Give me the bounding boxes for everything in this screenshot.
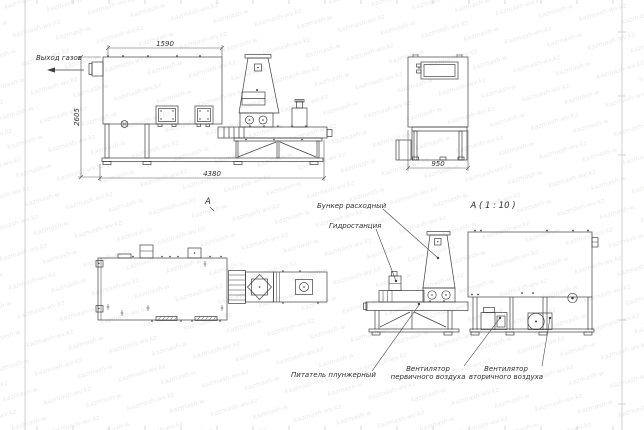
bunker-label: Бункер расходный <box>317 202 387 210</box>
feeder-label: Питатель плунжерный <box>291 371 376 379</box>
dim-2605-value: 2605 <box>73 108 81 126</box>
fan-primary-label-line2: первичного воздуха <box>391 373 466 381</box>
gas-outlet-label: Выход газов <box>36 54 82 62</box>
fan-secondary-label-line2: вторичного воздуха <box>469 373 543 381</box>
view-a-label: А <box>204 197 211 207</box>
drawing-sheet: kazmash-wv.kz kazmash-wv.kz <box>0 0 644 430</box>
fan-primary-label-line1: Вентилятор <box>406 365 450 373</box>
dim-4380-value: 4380 <box>203 170 221 178</box>
fan-secondary-label-line1: Вентилятор <box>484 365 528 373</box>
dim-950-value: 950 <box>431 160 445 168</box>
section-title: А ( 1 : 10 ) <box>469 201 515 211</box>
dim-1590-value: 1590 <box>156 40 174 48</box>
hydrostation-label: Гидростанция <box>329 222 381 230</box>
cad-drawing: kazmash-wv.kz kazmash-wv.kz <box>0 0 644 430</box>
watermark-layer <box>0 0 644 430</box>
